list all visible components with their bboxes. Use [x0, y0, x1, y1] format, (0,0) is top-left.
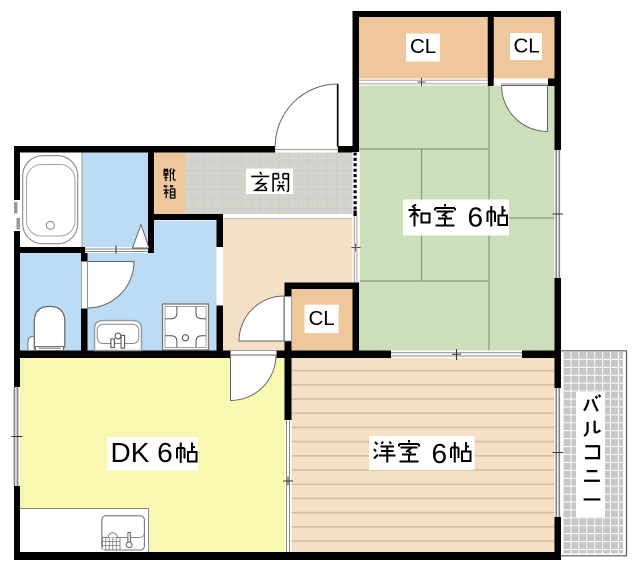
svg-text:6: 6 — [432, 438, 448, 469]
svg-text:CL: CL — [514, 35, 540, 58]
svg-text:CL: CL — [410, 35, 436, 58]
svg-text:DK 6: DK 6 — [111, 437, 173, 468]
svg-text:6: 6 — [468, 202, 484, 233]
svg-text:CL: CL — [309, 307, 335, 330]
